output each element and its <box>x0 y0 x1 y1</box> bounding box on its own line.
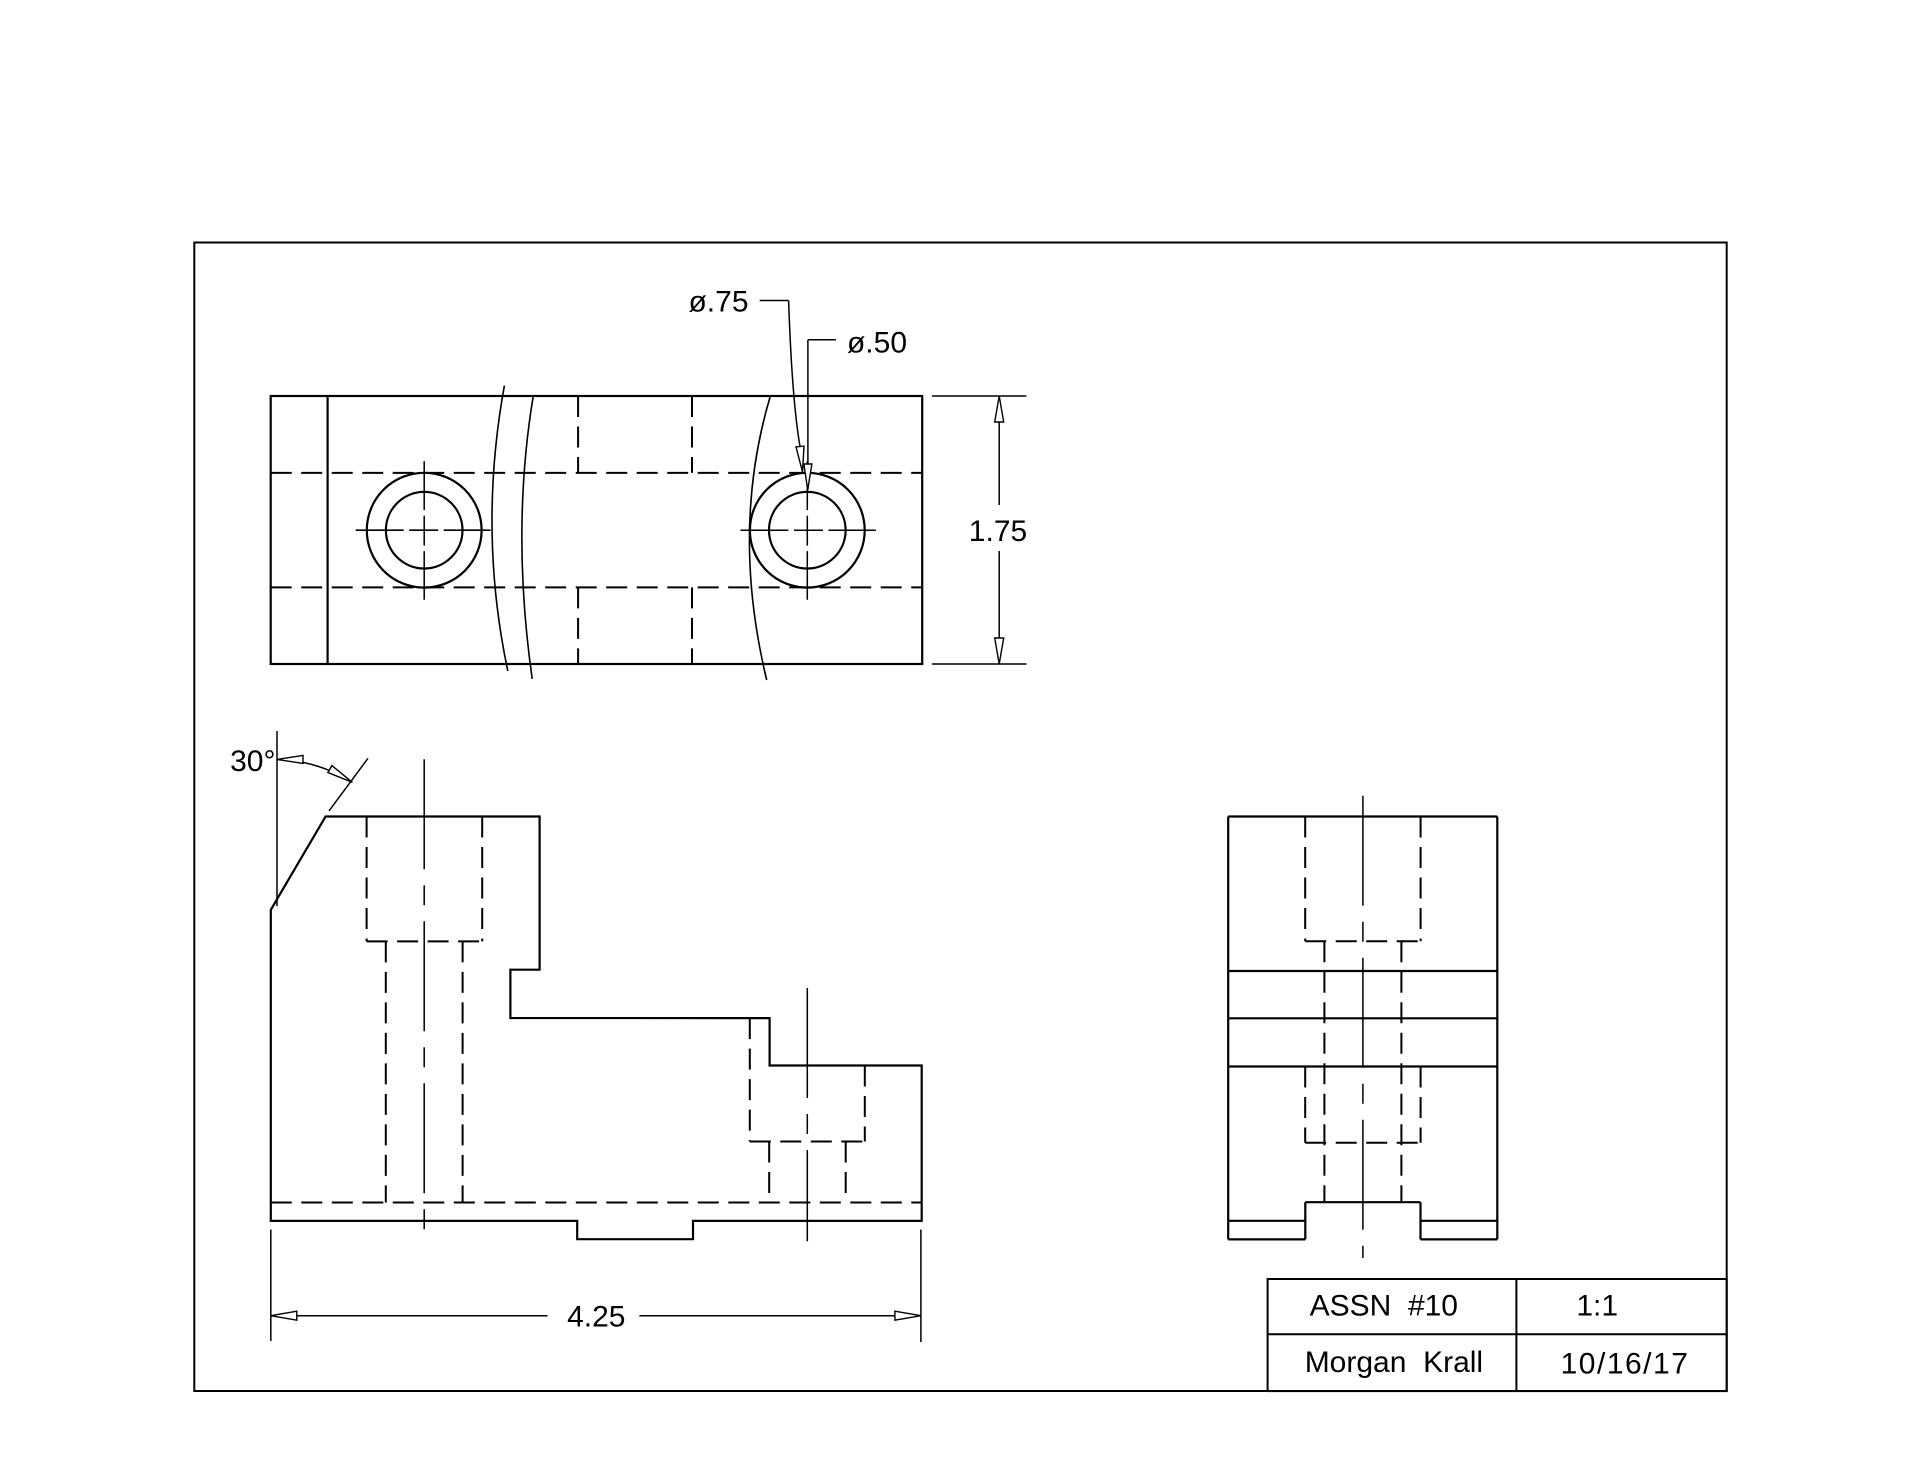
svg-text:4.25: 4.25 <box>567 1301 625 1334</box>
svg-text:30°: 30° <box>230 745 275 778</box>
svg-text:ASSN #10: ASSN #10 <box>1310 1289 1458 1322</box>
svg-text:Morgan Krall: Morgan Krall <box>1305 1346 1483 1379</box>
svg-text:1.75: 1.75 <box>969 515 1027 548</box>
svg-text:1:1: 1:1 <box>1576 1289 1618 1322</box>
svg-text:ø.75: ø.75 <box>688 286 748 319</box>
svg-text:ø.50: ø.50 <box>847 327 907 360</box>
svg-text:10/16/17: 10/16/17 <box>1561 1348 1690 1381</box>
